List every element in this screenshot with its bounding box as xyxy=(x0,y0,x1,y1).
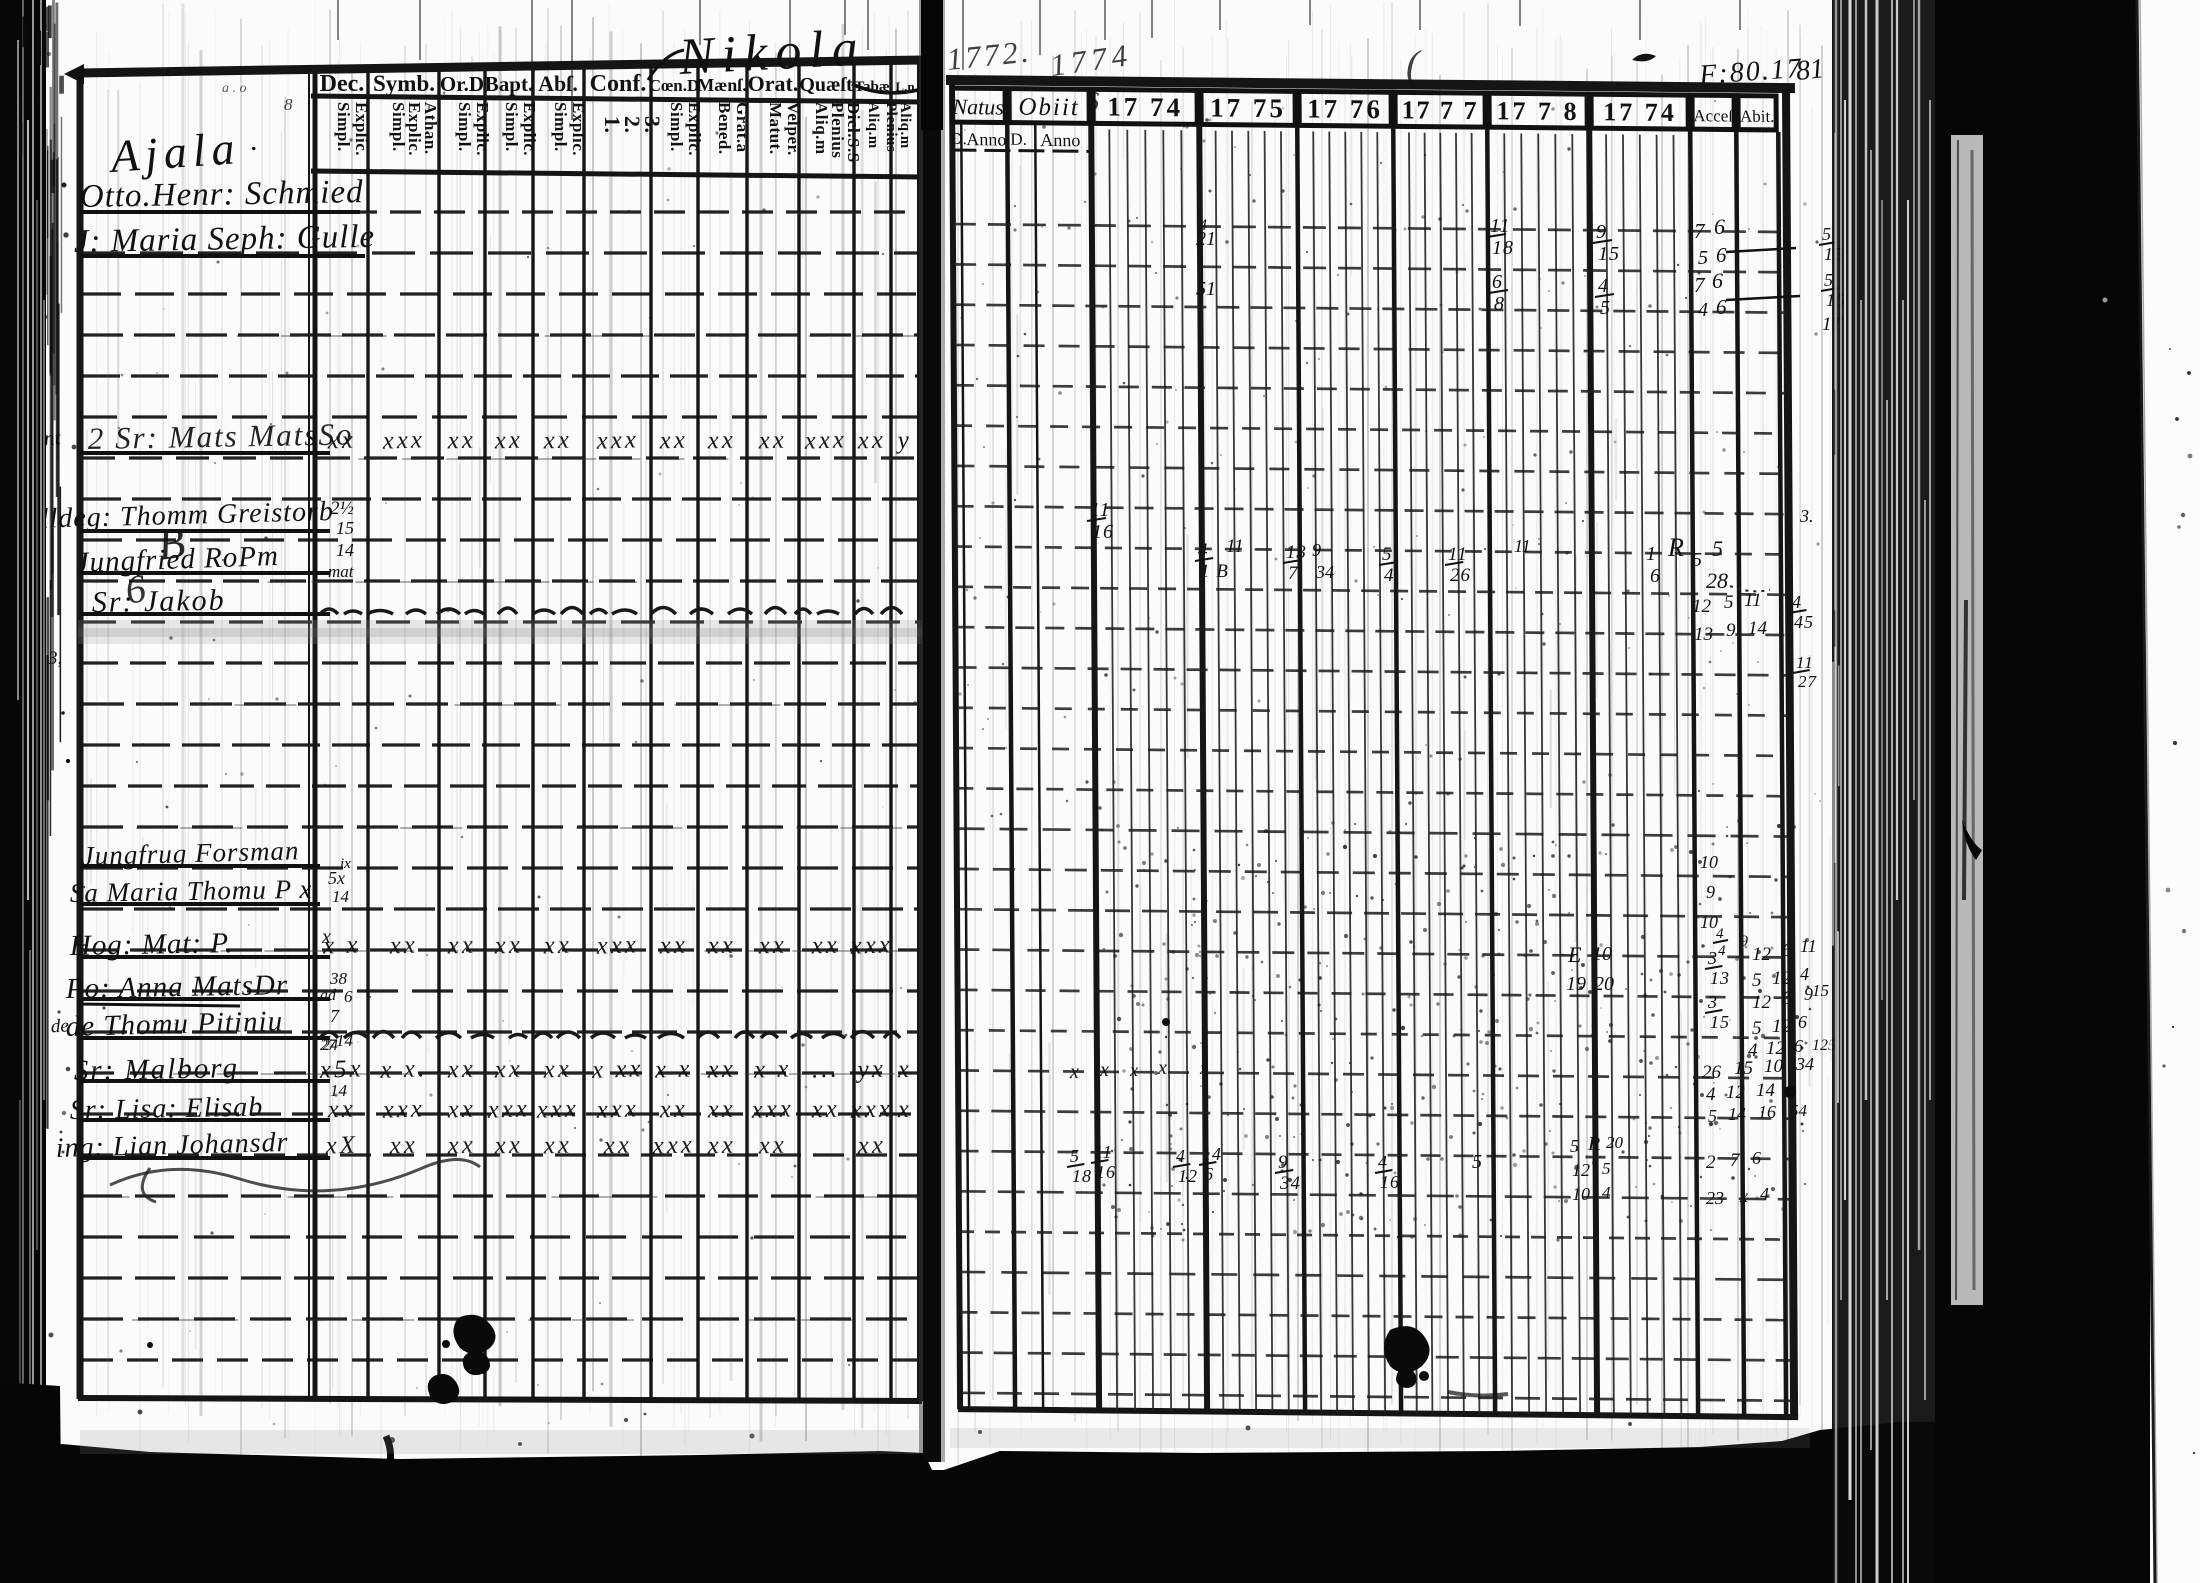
svg-text:xx: xx xyxy=(658,1096,688,1124)
svg-text:17 76: 17 76 xyxy=(1307,93,1383,124)
svg-text:xx: xx xyxy=(493,427,523,455)
svg-text:xxx: xxx xyxy=(595,931,639,959)
svg-text:xxx: xxx xyxy=(849,1095,893,1123)
svg-text:xxx: xxx xyxy=(486,1095,530,1123)
svg-text:9: 9 xyxy=(1804,984,1813,1004)
svg-text:9: 9 xyxy=(1706,882,1715,902)
svg-text:Simpl.: Simpl. xyxy=(455,102,474,152)
svg-text:Conf.: Conf. xyxy=(590,71,647,97)
svg-text:45: 45 xyxy=(1794,612,1814,632)
svg-text:xx: xx xyxy=(542,427,572,455)
svg-text:Simpl.: Simpl. xyxy=(389,102,408,152)
svg-text:Dec.: Dec. xyxy=(320,71,365,97)
svg-text:D.: D. xyxy=(950,129,967,148)
svg-text:xx: xx xyxy=(810,932,840,960)
svg-text:6: 6 xyxy=(1752,1148,1761,1168)
svg-text:12: 12 xyxy=(1772,968,1792,989)
svg-text:4: 4 xyxy=(1378,1152,1388,1172)
svg-text:3.: 3. xyxy=(1799,506,1814,526)
svg-text:xxx: xxx xyxy=(535,1095,579,1123)
svg-text:5: 5 xyxy=(1692,549,1702,571)
svg-text:16: 16 xyxy=(1092,521,1114,543)
svg-text:5: 5 xyxy=(1708,1106,1717,1126)
svg-text:xxx: xxx xyxy=(803,426,847,454)
svg-text:Simpl.: Simpl. xyxy=(551,102,570,152)
svg-text:10: 10 xyxy=(1764,1056,1784,1077)
svg-text:xx: xx xyxy=(706,427,736,455)
svg-text:2: 2 xyxy=(1706,1152,1716,1173)
svg-text:17 75: 17 75 xyxy=(1210,93,1286,124)
svg-text:11: 11 xyxy=(1744,590,1762,611)
svg-text:13: 13 xyxy=(1710,968,1730,988)
svg-text:17 7 8: 17 7 8 xyxy=(1497,96,1580,126)
svg-text:9: 9 xyxy=(1312,540,1321,560)
svg-text:4: 4 xyxy=(1706,1084,1716,1105)
svg-text:3: 3 xyxy=(1707,948,1718,968)
svg-text:10: 10 xyxy=(1572,1184,1590,1204)
svg-text:xxx: xxx xyxy=(595,1095,639,1123)
svg-text:12: 12 xyxy=(1772,1016,1792,1037)
svg-text:4: 4 xyxy=(1716,926,1725,942)
svg-text:11: 11 xyxy=(1796,653,1814,672)
svg-text:27: 27 xyxy=(1798,672,1818,691)
svg-text:17 7 7: 17 7 7 xyxy=(1402,95,1479,125)
svg-text:Simpl.: Simpl. xyxy=(334,102,353,152)
svg-text:9: 9 xyxy=(1726,620,1736,641)
svg-text:11: 11 xyxy=(1490,215,1511,237)
svg-text:xxx: xxx xyxy=(595,426,639,454)
svg-text:Or.D: Or.D xyxy=(440,72,484,96)
svg-text:x: x xyxy=(1069,1061,1079,1083)
svg-text:9: 9 xyxy=(1596,221,1607,243)
svg-text:Bapt.: Bapt. xyxy=(485,72,533,96)
svg-text:5: 5 xyxy=(1712,536,1723,561)
svg-text:a . o: a . o xyxy=(222,81,247,96)
svg-text:11: 11 xyxy=(1226,536,1244,557)
svg-text:Aliq.m: Aliq.m xyxy=(812,102,831,155)
svg-text:5: 5 xyxy=(1600,297,1611,319)
svg-text:6: 6 xyxy=(1712,268,1723,293)
svg-text:x: x xyxy=(1739,1186,1748,1206)
svg-text:4: 4 xyxy=(1598,275,1609,297)
svg-text:Hog: Mat: P.: Hog: Mat: P. xyxy=(69,927,234,962)
svg-text:E: E xyxy=(1567,942,1582,967)
svg-text:Anno: Anno xyxy=(966,129,1006,149)
svg-text:Sr: Lisa: Elisab: Sr: Lisa: Elisab xyxy=(70,1092,264,1126)
svg-text:xxx: xxx xyxy=(381,426,425,454)
svg-text:6: 6 xyxy=(1716,243,1727,267)
svg-text:Sr: Jakob: Sr: Jakob xyxy=(92,584,226,619)
svg-text:2 Sr: Mats MatsSo: 2 Sr: Mats MatsSo xyxy=(88,416,354,456)
svg-text:7: 7 xyxy=(1694,273,1706,297)
svg-text:Abſ.: Abſ. xyxy=(538,71,578,96)
svg-text:12: 12 xyxy=(1726,1082,1746,1103)
svg-text:21: 21 xyxy=(1196,228,1216,250)
svg-text:11: 11 xyxy=(1448,544,1468,565)
svg-text:6: 6 xyxy=(1492,271,1503,293)
svg-text:12: 12 xyxy=(1752,944,1772,965)
svg-text:xX: xX xyxy=(324,1131,358,1159)
svg-text:14: 14 xyxy=(1748,618,1768,639)
svg-text:5: 5 xyxy=(1602,1159,1611,1178)
svg-text:x x: x x xyxy=(654,1055,693,1083)
svg-text:mat: mat xyxy=(328,562,355,581)
svg-text:Grat.a: Grat.a xyxy=(733,102,752,153)
svg-text:34: 34 xyxy=(1315,562,1334,582)
svg-text:9: 9 xyxy=(1740,933,1748,950)
svg-text:xx: xx xyxy=(856,427,886,455)
svg-text:6: 6 xyxy=(1714,214,1725,239)
svg-text:23: 23 xyxy=(1706,1188,1724,1208)
svg-text:x: x xyxy=(1099,1059,1109,1081)
svg-text:5: 5 xyxy=(1070,1146,1080,1166)
svg-text:Explic.: Explic. xyxy=(473,102,492,156)
svg-text:xx: xx xyxy=(446,1056,476,1084)
svg-text:11: 11 xyxy=(1800,936,1817,956)
svg-text:Acceſ: Acceſ xyxy=(1693,106,1734,125)
svg-text:4: 4 xyxy=(1602,1183,1611,1202)
svg-text:xx: xx xyxy=(757,932,787,960)
svg-text:26: 26 xyxy=(1702,1062,1722,1083)
svg-text:14: 14 xyxy=(336,540,354,560)
svg-text:6: 6 xyxy=(1650,565,1660,587)
svg-text:x: x xyxy=(1157,1057,1167,1079)
svg-text:xx: xx xyxy=(446,427,476,455)
svg-text:xxx: xxx xyxy=(750,1095,794,1123)
svg-text:R: R xyxy=(1667,533,1684,562)
svg-text:ad: ad xyxy=(320,987,337,1004)
svg-text:54: 54 xyxy=(1790,1101,1808,1120)
svg-text:12: 12 xyxy=(1572,1160,1590,1180)
svg-text:x x: x x xyxy=(753,1055,792,1083)
svg-text:5: 5 xyxy=(1570,1136,1579,1156)
svg-text:xx: xx xyxy=(856,1132,886,1160)
svg-text:xx: xx xyxy=(658,932,688,960)
svg-text:D.: D. xyxy=(1010,130,1027,149)
svg-text:xx: xx xyxy=(706,1096,736,1124)
svg-text:12: 12 xyxy=(1692,596,1712,617)
svg-text:10: 10 xyxy=(1592,943,1612,965)
svg-text:Explic.: Explic. xyxy=(685,102,704,156)
svg-text:xx: xx xyxy=(388,932,418,960)
svg-text:20: 20 xyxy=(1606,1133,1624,1152)
svg-text:Explic.: Explic. xyxy=(520,102,539,156)
svg-text:15: 15 xyxy=(1812,981,1829,1000)
svg-text:6: 6 xyxy=(1782,940,1792,961)
svg-text:.: . xyxy=(250,124,258,157)
svg-text:11: 11 xyxy=(1090,499,1111,521)
svg-text:28: 28 xyxy=(1706,568,1728,593)
svg-text:xx: xx xyxy=(658,427,688,455)
svg-text:15: 15 xyxy=(1710,1012,1730,1032)
svg-text:14: 14 xyxy=(1202,1144,1222,1164)
svg-text:51: 51 xyxy=(1196,278,1216,300)
svg-text:11: 11 xyxy=(1094,1142,1113,1162)
svg-text:18: 18 xyxy=(1492,237,1514,259)
svg-text:5: 5 xyxy=(1752,970,1762,991)
svg-text:x x.: x x. xyxy=(379,1055,428,1084)
svg-text:...: ... xyxy=(811,1056,840,1084)
svg-text:Symb.: Symb. xyxy=(373,71,435,96)
svg-text:yx: yx xyxy=(854,1056,886,1084)
svg-text:14: 14 xyxy=(332,887,350,906)
svg-text:xx: xx xyxy=(542,1132,572,1160)
svg-text:1: 1 xyxy=(1646,543,1656,565)
svg-text:6: 6 xyxy=(1716,295,1727,319)
svg-text:1.: 1. xyxy=(600,116,625,134)
svg-text:7: 7 xyxy=(1694,219,1706,243)
svg-text:15: 15 xyxy=(1598,243,1620,265)
svg-text:Aliq.m: Aliq.m xyxy=(897,102,913,149)
svg-text:4: 4 xyxy=(1198,540,1209,561)
svg-text:x x: x x xyxy=(322,931,361,959)
svg-text:xx: xx xyxy=(542,932,572,960)
svg-text:Simpl.: Simpl. xyxy=(667,102,686,152)
svg-text:4: 4 xyxy=(1800,964,1809,984)
svg-text:x: x xyxy=(1199,1058,1208,1078)
svg-text:Aliq.m: Aliq.m xyxy=(865,102,881,149)
svg-text:14: 14 xyxy=(1756,1080,1776,1101)
svg-text:xx: xx xyxy=(446,932,476,960)
svg-text:xxx: xxx xyxy=(381,1095,425,1123)
svg-text:x xx: x xx xyxy=(591,1055,644,1084)
svg-text:16: 16 xyxy=(1758,1102,1776,1122)
svg-text:4: 4 xyxy=(1384,565,1395,586)
svg-text:Sr: Malborg: Sr: Malborg xyxy=(74,1052,240,1087)
svg-text:xx: xx xyxy=(493,932,523,960)
svg-text:4: 4 xyxy=(1718,943,1727,959)
svg-text:xx: xx xyxy=(493,1132,523,1160)
svg-text:xx: xx xyxy=(326,427,356,455)
svg-text:6: 6 xyxy=(1086,87,1099,116)
svg-text:11: 11 xyxy=(1514,536,1531,556)
svg-text:26: 26 xyxy=(1450,565,1471,586)
svg-text:J: Maria Seph: Gulle: J: Maria Seph: Gulle xyxy=(74,219,376,260)
svg-text:Plenius: Plenius xyxy=(883,102,899,152)
svg-text:8: 8 xyxy=(284,95,293,114)
svg-text:xx: xx xyxy=(810,1096,840,1124)
svg-text:ix: ix xyxy=(340,856,351,872)
svg-text:19: 19 xyxy=(1566,973,1586,995)
svg-text:6: 6 xyxy=(1782,987,1792,1009)
svg-text:5: 5 xyxy=(1752,1018,1762,1039)
svg-text:x: x xyxy=(896,1056,912,1084)
svg-text:38: 38 xyxy=(329,969,348,988)
svg-text:Matut.: Matut. xyxy=(766,102,785,155)
svg-text:18: 18 xyxy=(1072,1166,1092,1186)
svg-text:xxx: xxx xyxy=(651,1131,695,1159)
svg-text:4: 4 xyxy=(1760,1184,1769,1204)
svg-text:6: 6 xyxy=(344,987,353,1006)
svg-text:17 74: 17 74 xyxy=(1107,92,1183,123)
svg-text:xx: xx xyxy=(706,1056,736,1084)
svg-text:3: 3 xyxy=(1707,992,1718,1012)
svg-text:Veſper.: Veſper. xyxy=(784,102,803,156)
svg-text:10: 10 xyxy=(1700,852,1718,872)
svg-text:6: 6 xyxy=(1204,1164,1214,1184)
svg-text:1 B: 1 B xyxy=(1200,561,1229,582)
svg-text:7: 7 xyxy=(1730,1150,1741,1171)
svg-text:4: 4 xyxy=(1698,299,1708,321)
svg-text:12: 12 xyxy=(1752,992,1772,1013)
svg-text:xx: xx xyxy=(542,1056,572,1084)
svg-text:20: 20 xyxy=(1594,973,1614,995)
svg-text:xx: xx xyxy=(757,427,787,455)
svg-text:2½: 2½ xyxy=(330,498,354,519)
svg-text:R: R xyxy=(1587,1133,1600,1155)
svg-text:Natus: Natus xyxy=(951,94,1004,120)
svg-text:8: 8 xyxy=(1494,293,1505,315)
svg-text:xx: xx xyxy=(706,1132,736,1160)
svg-text:5: 5 xyxy=(1382,544,1393,565)
svg-text:Ajala: Ajala xyxy=(106,122,242,182)
svg-text:13: 13 xyxy=(1694,624,1713,645)
svg-text:xx: xx xyxy=(446,1132,476,1160)
svg-text:5: 5 xyxy=(1822,224,1832,244)
svg-text:6: 6 xyxy=(1794,1036,1803,1056)
svg-text:Obiit: Obiit xyxy=(1018,94,1080,122)
svg-text:Simpl.: Simpl. xyxy=(502,102,521,152)
svg-text:16: 16 xyxy=(1096,1162,1116,1182)
svg-text:5: 5 xyxy=(1472,1151,1482,1173)
svg-text:Explic.: Explic. xyxy=(352,102,371,156)
svg-text:xx: xx xyxy=(493,1056,523,1084)
svg-text:Abit.: Abit. xyxy=(1740,107,1775,126)
svg-text:14: 14 xyxy=(1728,1104,1746,1124)
svg-text:6: 6 xyxy=(1798,1012,1807,1032)
svg-text:15: 15 xyxy=(336,518,354,538)
svg-text:24: 24 xyxy=(322,1037,338,1054)
svg-text:de Thomu Pitiniu: de Thomu Pitiniu xyxy=(65,1005,283,1043)
svg-text:4: 4 xyxy=(1176,1146,1186,1166)
svg-text:xx: xx xyxy=(326,1096,356,1124)
svg-text:7: 7 xyxy=(330,1006,340,1026)
svg-text:xx: xx xyxy=(706,932,736,960)
svg-text:15: 15 xyxy=(1734,1058,1753,1079)
svg-text:Sa Maria Thomu P x: Sa Maria Thomu P x xyxy=(70,874,313,908)
svg-text:Nikola: Nikola xyxy=(677,19,867,86)
svg-text:ing: Lian Johansdr: ing: Lian Johansdr xyxy=(55,1127,288,1164)
svg-text:Bened.: Bened. xyxy=(715,102,734,155)
svg-text:xx: xx xyxy=(757,1132,787,1160)
svg-text:x5x: x5x xyxy=(318,1055,364,1084)
svg-text:34: 34 xyxy=(1279,1173,1301,1194)
svg-text:81: 81 xyxy=(1794,53,1825,87)
svg-text:x: x xyxy=(1129,1060,1138,1080)
svg-text:xx: xx xyxy=(388,1132,418,1160)
svg-text:12: 12 xyxy=(1178,1166,1198,1186)
svg-text:Anno: Anno xyxy=(1040,130,1080,150)
svg-text:4: 4 xyxy=(1792,592,1802,612)
svg-text:Otto.Henr: Schmied: Otto.Henr: Schmied xyxy=(80,174,364,215)
svg-text:34: 34 xyxy=(1795,1054,1814,1074)
svg-text:5: 5 xyxy=(1698,247,1708,269)
svg-text:x: x xyxy=(896,1096,912,1124)
svg-text:9: 9 xyxy=(1278,1152,1289,1173)
svg-text:xx: xx xyxy=(446,1096,476,1124)
svg-text:Jungfrug Forsman: Jungfrug Forsman xyxy=(81,835,299,871)
svg-text:17 74: 17 74 xyxy=(1603,97,1677,127)
svg-text:xxx: xxx xyxy=(849,931,893,959)
svg-text:16: 16 xyxy=(1380,1172,1400,1192)
svg-text:xx: xx xyxy=(602,1132,632,1160)
svg-text:Explic.: Explic. xyxy=(569,102,588,156)
svg-text:5: 5 xyxy=(1724,592,1734,613)
svg-text:Po: Anna MatsDr: Po: Anna MatsDr xyxy=(65,969,289,1005)
svg-text:7: 7 xyxy=(1288,563,1299,584)
